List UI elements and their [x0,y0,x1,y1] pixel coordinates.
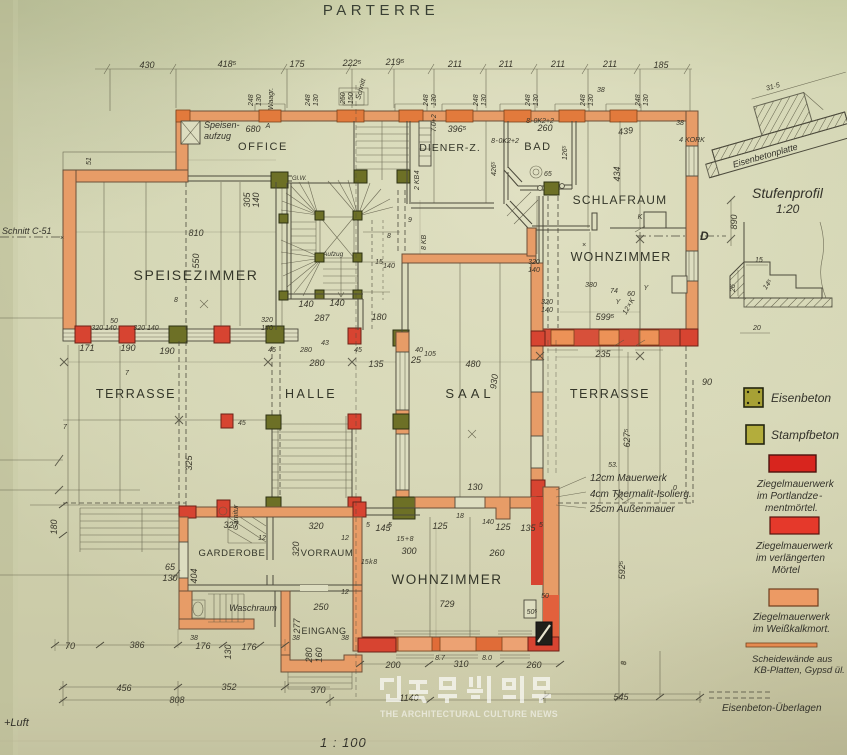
svg-text:930: 930 [488,373,500,389]
svg-text:KB-Platten, Gypsd ül.: KB-Platten, Gypsd ül. [754,665,845,676]
svg-text:18: 18 [456,513,464,520]
svg-text:TERRASSE: TERRASSE [96,387,176,401]
svg-text:248: 248 [305,94,312,107]
svg-text:OFFICE: OFFICE [238,141,288,153]
svg-text:45: 45 [268,347,276,354]
svg-text:8.0: 8.0 [482,655,492,662]
svg-text:Eisenbeton: Eisenbeton [771,391,831,405]
svg-text:TERRASSE: TERRASSE [570,387,650,401]
svg-text:320: 320 [261,317,273,324]
svg-text:480: 480 [465,359,480,369]
svg-text:9: 9 [408,217,412,224]
svg-text:Ziegelmauerwerk: Ziegelmauerwerk [755,541,834,552]
svg-text:211: 211 [447,59,462,69]
svg-text:175: 175 [289,59,305,69]
svg-text:1 : 100: 1 : 100 [320,735,367,750]
svg-text:65: 65 [165,562,176,572]
svg-text:418⁵: 418⁵ [218,59,237,69]
svg-text:40: 40 [415,347,423,354]
svg-text:74: 74 [610,288,618,295]
svg-text:aufzug: aufzug [204,131,231,141]
svg-text:426⁵: 426⁵ [491,161,498,176]
svg-text:140: 140 [383,263,395,270]
svg-text:211: 211 [498,59,513,69]
svg-text:260: 260 [488,548,504,558]
svg-text:248: 248 [248,94,255,107]
svg-text:140: 140 [541,307,553,314]
svg-text:140: 140 [251,192,261,207]
svg-text:38: 38 [676,120,684,127]
svg-text:PARTERRE: PARTERRE [323,2,439,19]
svg-text:Ziegelmauerwerk: Ziegelmauerwerk [752,612,831,623]
svg-text:8.7: 8.7 [435,655,446,662]
svg-text:680: 680 [245,124,260,134]
svg-text:DIENER-Z.: DIENER-Z. [419,142,481,154]
svg-text:45: 45 [238,420,246,427]
svg-text:50: 50 [541,593,549,600]
svg-text:592⁵: 592⁵ [617,560,627,579]
svg-text:287: 287 [313,313,330,323]
svg-text:90: 90 [702,377,712,387]
svg-text:60: 60 [627,291,635,298]
svg-text:248: 248 [423,94,430,107]
svg-text:51: 51 [86,157,93,165]
svg-text:4 KORK: 4 KORK [679,137,705,144]
svg-text:599⁵: 599⁵ [596,312,615,322]
svg-text:211: 211 [602,59,617,69]
svg-text:12: 12 [258,535,266,542]
svg-text:38: 38 [597,87,605,94]
svg-text:140: 140 [329,298,344,308]
svg-text:890: 890 [729,214,739,229]
svg-text:370: 370 [310,685,325,695]
svg-text:HALLE: HALLE [285,387,337,401]
svg-text:140: 140 [528,267,540,274]
svg-text:380: 380 [585,282,597,289]
svg-text:25cm Außenmauer: 25cm Außenmauer [589,504,675,515]
svg-text:190: 190 [159,346,174,356]
svg-text:15 + 8: 15 + 8 [397,536,414,543]
svg-text:43: 43 [321,340,329,347]
svg-text:20: 20 [752,325,761,332]
svg-text:1:20: 1:20 [776,202,800,216]
svg-text:130: 130 [313,94,320,106]
svg-text:A: A [265,123,271,130]
svg-text:260: 260 [525,660,541,670]
svg-text:176: 176 [195,641,210,651]
svg-text:BAD: BAD [524,141,551,153]
svg-text:12: 12 [341,589,349,596]
svg-text:EINGANG: EINGANG [301,626,346,636]
svg-text:810: 810 [188,228,203,238]
svg-text:Ziegelmauerwerk: Ziegelmauerwerk [756,479,835,490]
svg-text:250: 250 [312,602,328,612]
svg-text:171: 171 [79,343,94,353]
svg-text:235: 235 [594,349,611,359]
svg-text:Waagr.: Waagr. [268,88,275,110]
svg-text:219⁵: 219⁵ [385,57,405,67]
svg-text:140: 140 [482,519,494,526]
svg-text:135: 135 [520,523,536,533]
svg-text:150: 150 [348,92,355,104]
svg-text:Mörtel: Mörtel [772,565,801,576]
svg-text:SCHLAFRAUM: SCHLAFRAUM [573,193,668,207]
svg-text:×: × [582,242,586,249]
svg-text:729: 729 [439,599,454,609]
svg-text:105: 105 [424,351,436,358]
svg-text:190: 190 [120,343,135,353]
svg-text:140: 140 [298,299,313,309]
svg-text:5: 5 [388,522,392,529]
svg-text:434: 434 [612,166,622,181]
svg-text:439: 439 [617,125,633,137]
svg-text:15: 15 [375,259,383,266]
svg-text:320: 320 [528,259,540,266]
svg-text:222⁵: 222⁵ [342,58,362,68]
svg-text:248: 248 [473,94,480,107]
svg-text:211: 211 [550,59,565,69]
svg-text:8 - 0K2+2: 8 - 0K2+2 [491,138,519,145]
svg-text:130: 130 [643,94,650,106]
svg-text:135: 135 [368,359,384,369]
svg-text:185: 185 [653,60,669,70]
svg-text:WOHNZIMMER: WOHNZIMMER [392,572,503,587]
svg-text:Speisen-: Speisen- [204,120,240,130]
svg-text:8 - 0K2+2: 8 - 0K2+2 [526,118,554,125]
svg-text:7.0+2: 7.0+2 [431,114,438,132]
svg-text:320 140: 320 140 [133,325,158,332]
svg-text:8: 8 [621,661,628,665]
svg-text:250: 250 [340,92,347,105]
svg-text:280: 280 [304,647,314,663]
svg-text:VORRAUM: VORRAUM [301,548,354,559]
svg-text:130: 130 [223,644,233,659]
svg-text:180: 180 [371,312,386,322]
svg-text:WOHNZIMMER: WOHNZIMMER [571,250,672,264]
svg-text:180: 180 [49,519,59,534]
svg-text:320: 320 [291,541,301,556]
svg-text:45: 45 [354,347,362,354]
svg-text:12cm Mauerwerk: 12cm Mauerwerk [590,473,668,484]
svg-text:Gl.W.: Gl.W. [292,176,307,182]
svg-text:+Luft: +Luft [4,717,30,729]
svg-text:im Weißkalkmort.: im Weißkalkmort. [753,624,830,635]
svg-text:38: 38 [190,635,198,642]
svg-text:130: 130 [481,94,488,106]
svg-text:GARDEROBE: GARDEROBE [198,548,265,559]
svg-text:Schnitt C-51: Schnitt C-51 [2,226,52,236]
svg-text:2 KB 4: 2 KB 4 [414,170,421,191]
svg-text:im Portlandze -: im Portlandze - [757,491,823,502]
svg-text:Scheidewände aus: Scheidewände aus [752,654,833,665]
svg-text:125: 125 [495,522,511,532]
svg-text:mentmörtel.: mentmörtel. [765,503,818,514]
svg-text:126⁵: 126⁵ [562,145,569,160]
svg-text:38: 38 [292,635,300,642]
svg-text:15 k 8: 15 k 8 [361,559,377,566]
svg-text:300: 300 [401,546,416,556]
svg-text:280: 280 [308,358,324,368]
svg-text:D: D [700,229,709,243]
svg-text:396⁵: 396⁵ [448,124,467,134]
svg-text:Eisenbeton-Überlagen: Eisenbeton-Überlagen [722,702,822,714]
svg-text:26: 26 [730,284,737,293]
svg-text:K: K [638,214,643,221]
svg-text:8: 8 [387,233,391,240]
svg-text:430: 430 [139,60,154,70]
svg-text:325: 325 [184,455,194,471]
svg-text:50: 50 [110,318,118,325]
svg-text:25: 25 [410,355,422,365]
svg-text:550: 550 [191,253,201,268]
svg-text:15: 15 [755,257,763,264]
svg-text:130: 130 [162,573,177,583]
svg-text:140: 140 [261,325,273,332]
svg-text:404: 404 [189,568,199,583]
svg-text:70: 70 [65,641,75,651]
svg-text:12: 12 [341,535,349,542]
svg-text:0: 0 [673,485,677,492]
svg-text:130: 130 [431,94,438,106]
svg-text:8 KB: 8 KB [421,234,428,250]
svg-text:Garnitur: Garnitur [233,504,240,530]
svg-text:53.: 53. [608,462,618,469]
svg-text:38: 38 [341,635,349,642]
svg-text:Waschraum: Waschraum [229,603,277,613]
svg-text:627⁵: 627⁵ [622,428,632,447]
svg-text:THE ARCHITECTURAL CULTURE NEWS: THE ARCHITECTURAL CULTURE NEWS [380,709,558,719]
svg-text:320: 320 [541,299,553,306]
svg-text:im verlängerten: im verlängerten [756,553,825,564]
svg-text:8: 8 [174,297,178,304]
svg-text:277: 277 [292,618,302,635]
svg-text:200: 200 [384,660,400,670]
svg-text:160: 160 [314,647,324,662]
svg-text:130: 130 [467,482,482,492]
svg-text:280: 280 [299,347,312,354]
svg-text:456: 456 [116,683,131,693]
svg-text:Stampfbeton: Stampfbeton [771,428,839,442]
svg-text:×: × [60,235,64,242]
svg-text:176: 176 [241,642,256,652]
svg-text:125: 125 [432,521,448,531]
svg-text:320 140: 320 140 [91,325,116,332]
svg-text:50⁵: 50⁵ [527,609,538,616]
svg-text:65: 65 [544,171,552,178]
svg-text:Stufenprofil: Stufenprofil [752,185,824,201]
svg-text:Aufzug: Aufzug [322,251,344,258]
svg-text:248: 248 [580,94,587,107]
svg-text:5: 5 [366,522,370,529]
svg-text:5: 5 [539,522,543,529]
svg-text:320: 320 [308,521,323,531]
svg-text:248: 248 [525,94,532,107]
